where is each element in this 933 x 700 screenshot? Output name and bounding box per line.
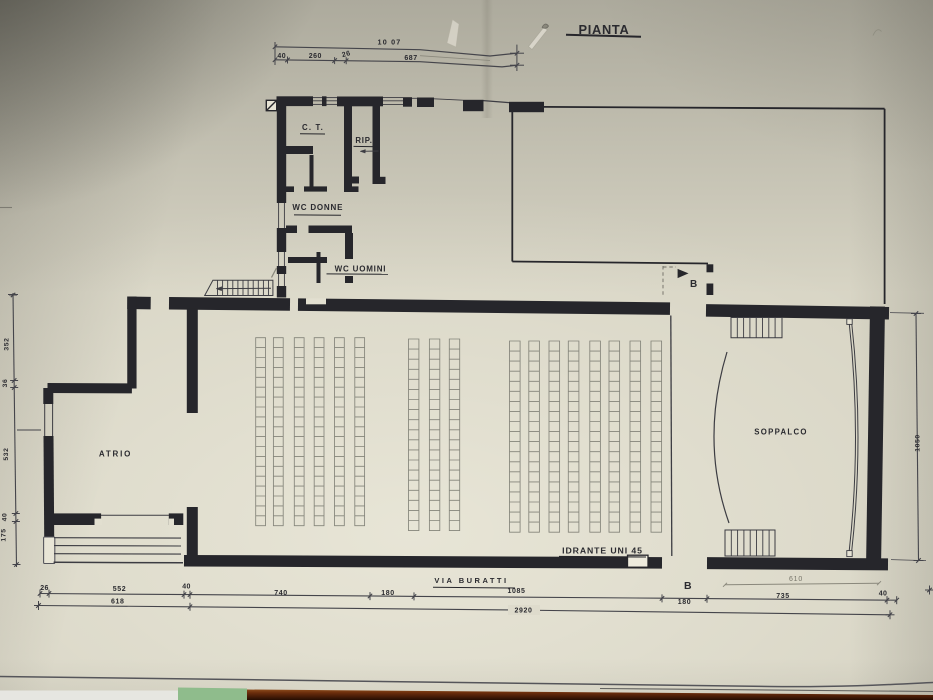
svg-text:1050: 1050 bbox=[915, 434, 922, 452]
svg-text:180: 180 bbox=[381, 590, 394, 597]
svg-text:RIP.: RIP. bbox=[355, 136, 372, 145]
svg-text:40: 40 bbox=[277, 53, 286, 60]
svg-text:735: 735 bbox=[776, 593, 789, 600]
svg-text:WC UOMINI: WC UOMINI bbox=[335, 264, 387, 273]
svg-text:1085: 1085 bbox=[508, 588, 526, 595]
svg-text:40: 40 bbox=[182, 584, 191, 591]
svg-text:740: 740 bbox=[274, 590, 287, 597]
svg-text:26: 26 bbox=[341, 50, 351, 59]
svg-text:IDRANTE UNI 45: IDRANTE UNI 45 bbox=[562, 545, 643, 555]
svg-text:26: 26 bbox=[40, 585, 49, 592]
svg-text:40: 40 bbox=[879, 590, 888, 597]
svg-text:40: 40 bbox=[2, 513, 9, 522]
svg-text:36: 36 bbox=[2, 379, 9, 388]
svg-text:VIA BURATTI: VIA BURATTI bbox=[434, 576, 508, 585]
svg-text:B: B bbox=[684, 580, 692, 592]
svg-text:WC DONNE: WC DONNE bbox=[292, 203, 343, 212]
svg-text:180: 180 bbox=[678, 599, 691, 606]
svg-text:2920: 2920 bbox=[515, 608, 533, 615]
svg-text:610: 610 bbox=[789, 576, 803, 583]
svg-text:532: 532 bbox=[3, 447, 10, 460]
svg-text:260: 260 bbox=[309, 53, 322, 60]
svg-text:618: 618 bbox=[111, 598, 124, 605]
svg-text:B: B bbox=[690, 279, 697, 290]
svg-text:352: 352 bbox=[4, 337, 11, 350]
svg-text:175: 175 bbox=[1, 528, 8, 541]
svg-text:687: 687 bbox=[404, 55, 417, 62]
svg-text:SOPPALCO: SOPPALCO bbox=[754, 428, 808, 437]
svg-text:C. T.: C. T. bbox=[302, 123, 324, 132]
svg-text:10 07: 10 07 bbox=[378, 37, 402, 46]
svg-text:552: 552 bbox=[113, 586, 126, 593]
svg-text:ATRIO: ATRIO bbox=[99, 450, 132, 459]
